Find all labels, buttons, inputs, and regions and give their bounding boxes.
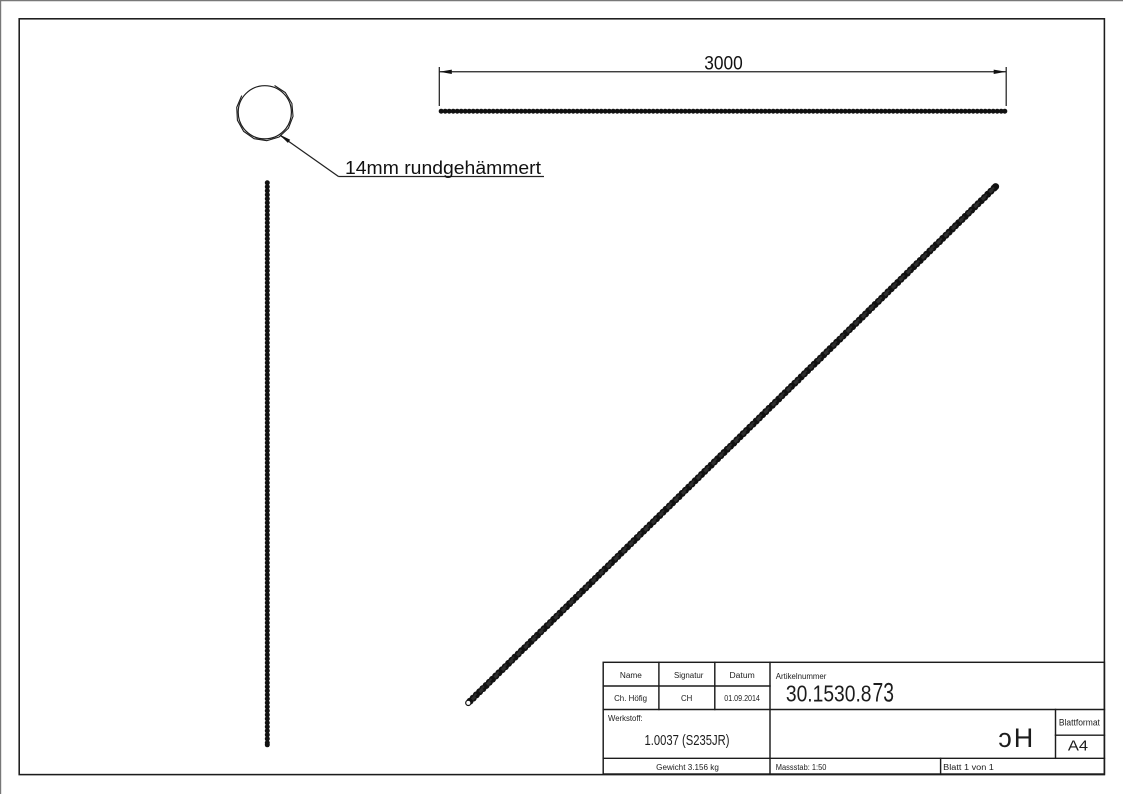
- svg-text:30.1530.8: 30.1530.8: [786, 681, 872, 707]
- svg-text:A4: A4: [1068, 738, 1088, 755]
- svg-text:Ch. Höfig: Ch. Höfig: [614, 694, 647, 703]
- svg-text:ɔH: ɔH: [998, 723, 1033, 753]
- svg-text:Signatur: Signatur: [674, 671, 704, 680]
- svg-text:Blatt 1 von 1: Blatt 1 von 1: [943, 763, 994, 772]
- svg-text:Werkstoff:: Werkstoff:: [608, 714, 643, 723]
- svg-text:14mm rundgehämmert: 14mm rundgehämmert: [345, 157, 541, 178]
- svg-text:1.0037 (S235JR): 1.0037 (S235JR): [645, 733, 730, 749]
- svg-text:CH: CH: [681, 694, 693, 703]
- svg-text:Blattformat: Blattformat: [1059, 718, 1100, 728]
- svg-text:Gewicht 3.156 kg: Gewicht 3.156 kg: [656, 763, 719, 772]
- svg-text:Massstab: 1:50: Massstab: 1:50: [776, 763, 827, 772]
- svg-text:01.09.2014: 01.09.2014: [724, 694, 760, 703]
- svg-text:Name: Name: [620, 671, 643, 680]
- svg-text:Datum: Datum: [730, 671, 756, 680]
- svg-text:3000: 3000: [704, 52, 743, 74]
- svg-text:73: 73: [873, 678, 895, 708]
